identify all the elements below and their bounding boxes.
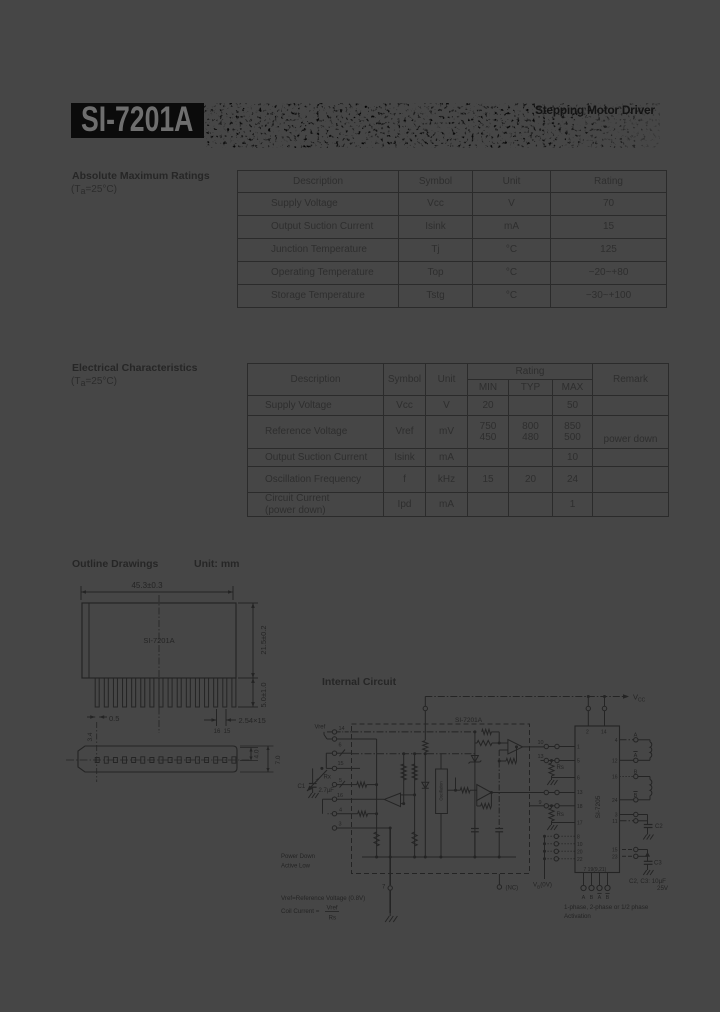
svg-text:14: 14 [601, 730, 607, 736]
svg-text:22: 22 [577, 857, 583, 863]
svg-text:Vref: Vref [327, 905, 338, 912]
svg-text:10: 10 [538, 740, 544, 746]
svg-text:Coil Current =: Coil Current = [281, 908, 320, 915]
svg-text:9: 9 [539, 800, 542, 806]
svg-text:6: 6 [577, 776, 580, 782]
svg-text:12: 12 [612, 758, 618, 764]
svg-text:SI-7205: SI-7205 [595, 795, 602, 818]
svg-text:3: 3 [339, 822, 342, 828]
svg-text:11: 11 [612, 819, 617, 825]
svg-text:3: 3 [615, 813, 618, 819]
svg-text:Oscillation: Oscillation [439, 781, 444, 801]
svg-text:4: 4 [339, 808, 342, 814]
svg-text:16: 16 [612, 775, 618, 781]
svg-text:VB(0V): VB(0V) [533, 882, 552, 890]
svg-text:20: 20 [577, 849, 583, 855]
svg-text:21.5±0.2: 21.5±0.2 [259, 625, 268, 654]
svg-text:C2, C3: 10µF: C2, C3: 10µF [629, 878, 666, 885]
svg-text:13: 13 [577, 790, 583, 796]
svg-text:+: + [316, 778, 320, 784]
svg-text:16: 16 [337, 793, 343, 799]
svg-text:5: 5 [577, 759, 580, 765]
svg-text:7.0: 7.0 [275, 755, 282, 764]
svg-text:4: 4 [615, 738, 618, 744]
svg-text:4.0: 4.0 [254, 749, 261, 758]
svg-text:Rx: Rx [324, 775, 331, 781]
svg-text:7 19(9,21): 7 19(9,21) [584, 867, 607, 873]
svg-text:15: 15 [224, 729, 231, 735]
svg-text:6: 6 [339, 743, 342, 749]
svg-text:1: 1 [577, 745, 580, 751]
svg-text:8: 8 [577, 834, 580, 840]
svg-text:3.4: 3.4 [87, 732, 94, 741]
svg-text:45.3±0.3: 45.3±0.3 [131, 581, 163, 590]
svg-text:(NC): (NC) [506, 886, 519, 892]
svg-text:17: 17 [577, 821, 583, 827]
svg-text:1-phase, 2-phase or 1/2 phase: 1-phase, 2-phase or 1/2 phase [564, 904, 649, 911]
svg-text:B: B [606, 895, 610, 901]
svg-text:24: 24 [612, 798, 618, 804]
svg-text:16: 16 [214, 729, 221, 735]
svg-text:15: 15 [338, 761, 344, 767]
svg-text:A: A [582, 895, 586, 901]
svg-text:A: A [598, 895, 602, 901]
svg-text:5: 5 [339, 778, 342, 784]
svg-text:7: 7 [382, 885, 386, 891]
svg-text:15: 15 [612, 848, 618, 854]
svg-text:C2: C2 [655, 824, 663, 830]
svg-text:18: 18 [577, 804, 583, 810]
svg-text:Vref=Reference Voltage (0.8V): Vref=Reference Voltage (0.8V) [281, 895, 365, 902]
svg-text:2.54×15: 2.54×15 [239, 716, 266, 725]
svg-text:14: 14 [339, 726, 345, 732]
svg-text:0.5: 0.5 [109, 714, 119, 723]
svg-text:VCC: VCC [633, 693, 646, 704]
svg-text:B: B [590, 895, 594, 901]
svg-text:2.7µF: 2.7µF [319, 788, 335, 794]
svg-text:2: 2 [586, 730, 589, 736]
svg-text:SI-7201A: SI-7201A [455, 717, 483, 724]
svg-text:Power Down: Power Down [281, 854, 315, 860]
svg-text:C3: C3 [654, 861, 662, 867]
svg-text:5.0±1.0: 5.0±1.0 [259, 683, 268, 708]
svg-text:10: 10 [577, 842, 583, 848]
svg-text:Rs: Rs [329, 915, 337, 922]
svg-text:23: 23 [612, 854, 618, 860]
svg-text:Activation: Activation [564, 913, 591, 920]
svg-text:13: 13 [538, 754, 544, 760]
svg-text:Rs: Rs [557, 812, 564, 818]
svg-text:25V: 25V [657, 885, 669, 892]
svg-text:C1: C1 [298, 784, 306, 790]
svg-text:Rs: Rs [557, 765, 564, 771]
svg-text:Active Low: Active Low [281, 864, 311, 870]
svg-text:Vref: Vref [315, 725, 326, 731]
